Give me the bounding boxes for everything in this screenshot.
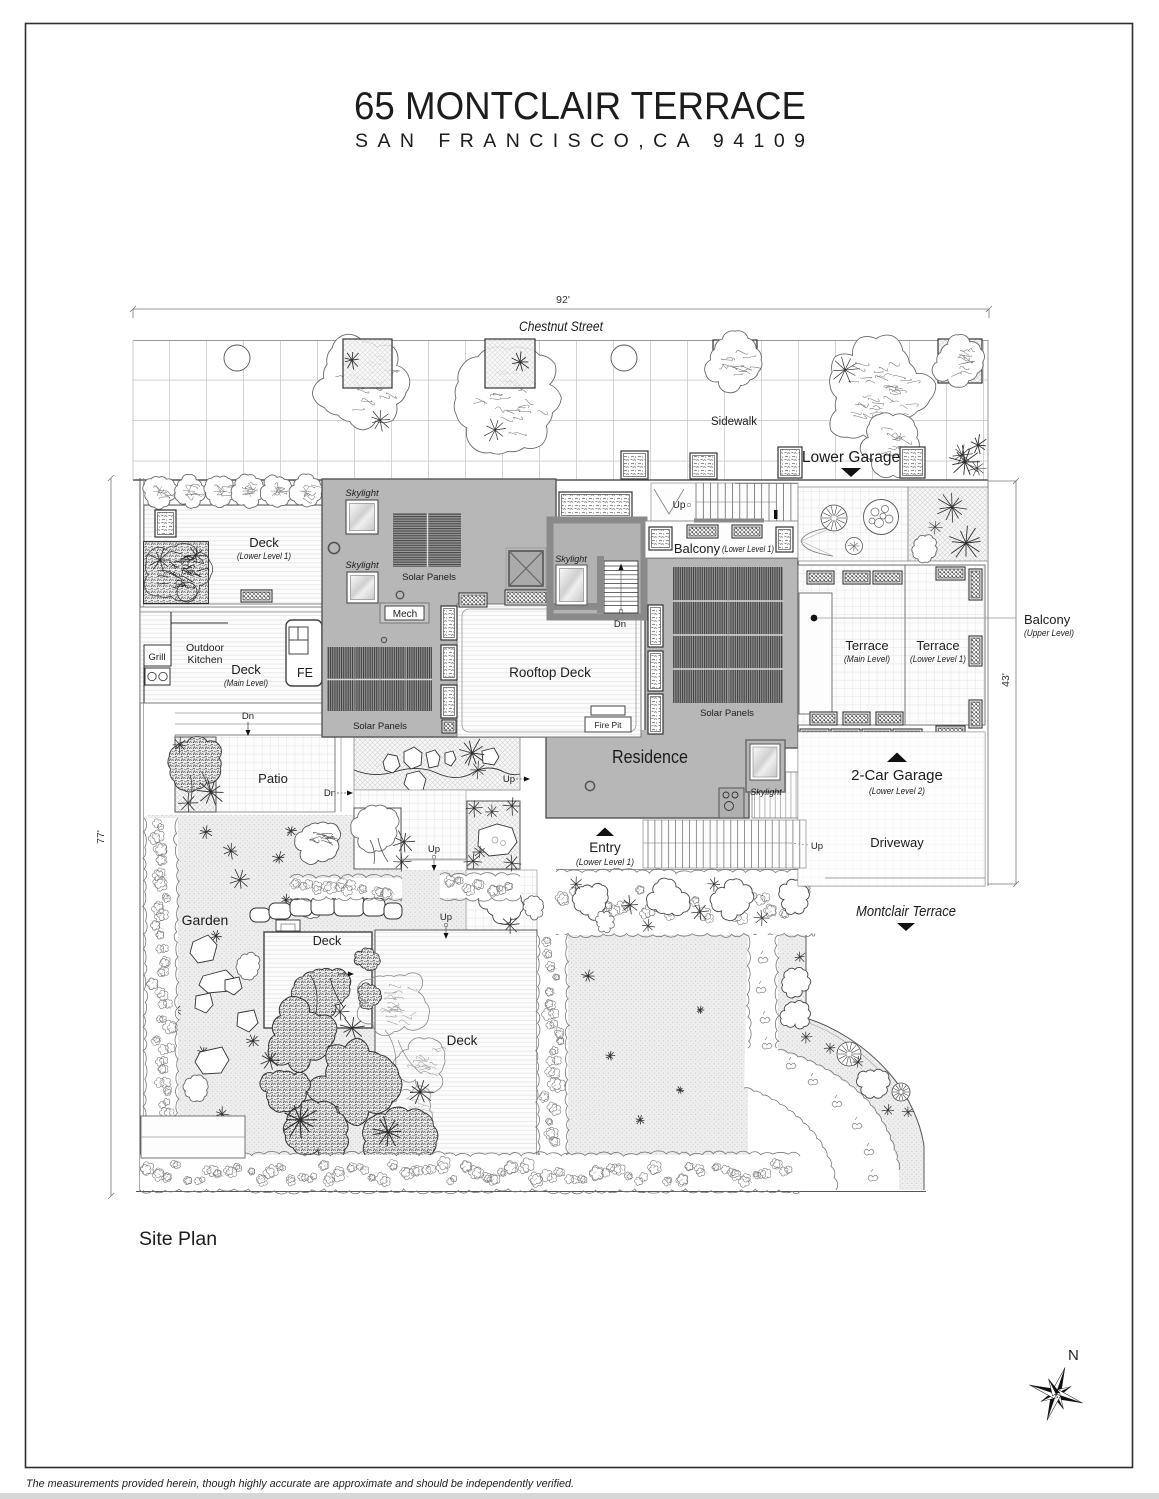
svg-text:92': 92' [556,294,570,306]
svg-text:Site Plan: Site Plan [139,1228,217,1250]
svg-text:Deck: Deck [447,1033,478,1048]
svg-text:Fire Pit: Fire Pit [595,720,623,730]
svg-text:FE: FE [297,666,313,680]
svg-text:Up: Up [428,844,440,855]
svg-text:Skylight: Skylight [345,560,379,571]
svg-text:Dn: Dn [614,619,626,630]
svg-text:Balcony: Balcony [674,541,721,556]
svg-text:77': 77' [95,830,107,844]
svg-text:Up: Up [440,912,452,923]
svg-text:Chestnut Street: Chestnut Street [519,319,604,334]
svg-text:Deck: Deck [313,934,342,948]
svg-text:Grill: Grill [149,652,166,663]
svg-text:Dn: Dn [242,711,254,722]
svg-text:Lower Garage: Lower Garage [802,449,900,466]
svg-text:Montclair Terrace: Montclair Terrace [856,903,956,920]
svg-text:43': 43' [1000,673,1012,687]
svg-text:(Main Level): (Main Level) [844,654,890,665]
svg-text:Rooftop Deck: Rooftop Deck [509,665,591,680]
svg-text:Entry: Entry [589,840,621,855]
svg-text:2-Car Garage: 2-Car Garage [851,767,943,784]
svg-text:(Main Level): (Main Level) [224,678,268,689]
svg-text:(Lower Level 1): (Lower Level 1) [576,857,634,868]
svg-text:Sidewalk: Sidewalk [711,416,757,428]
svg-text:Deck: Deck [231,662,261,677]
svg-text:(Lower Level 1): (Lower Level 1) [237,551,291,562]
svg-text:Garden: Garden [182,912,229,928]
svg-text:N: N [1068,1347,1079,1364]
svg-text:Up: Up [811,841,823,852]
svg-text:Solar Panels: Solar Panels [700,708,754,719]
svg-text:Up: Up [503,774,515,785]
svg-text:(Upper Level): (Upper Level) [1024,628,1074,639]
svg-text:Dn: Dn [324,788,336,799]
svg-text:Balcony: Balcony [1024,612,1071,627]
svg-text:(Lower Level 1): (Lower Level 1) [722,544,774,555]
svg-text:Deck: Deck [249,535,279,550]
svg-text:Terrace: Terrace [916,638,959,653]
svg-text:Patio: Patio [258,771,288,786]
svg-text:(Lower Level 2): (Lower Level 2) [869,786,925,797]
svg-text:Residence: Residence [612,747,688,767]
svg-text:Outdoor: Outdoor [186,642,224,654]
svg-text:Solar Panels: Solar Panels [402,572,456,583]
svg-text:Skylight: Skylight [345,488,379,499]
svg-text:Driveway: Driveway [870,835,924,850]
svg-text:Terrace: Terrace [845,638,888,653]
svg-text:Up: Up [673,500,686,511]
svg-text:Mech: Mech [393,609,417,620]
svg-text:Kitchen: Kitchen [187,654,222,666]
svg-text:(Lower Level 1): (Lower Level 1) [910,654,966,665]
svg-text:65 MONTCLAIR TERRACE: 65 MONTCLAIR TERRACE [354,85,806,128]
svg-text:Skylight: Skylight [750,787,782,797]
svg-text:The measurements provided here: The measurements provided herein, though… [26,1478,574,1490]
svg-text:Skylight: Skylight [555,554,587,564]
svg-text:Solar Panels: Solar Panels [353,721,407,732]
svg-text:SAN FRANCISCO,CA 94109: SAN FRANCISCO,CA 94109 [355,130,805,152]
